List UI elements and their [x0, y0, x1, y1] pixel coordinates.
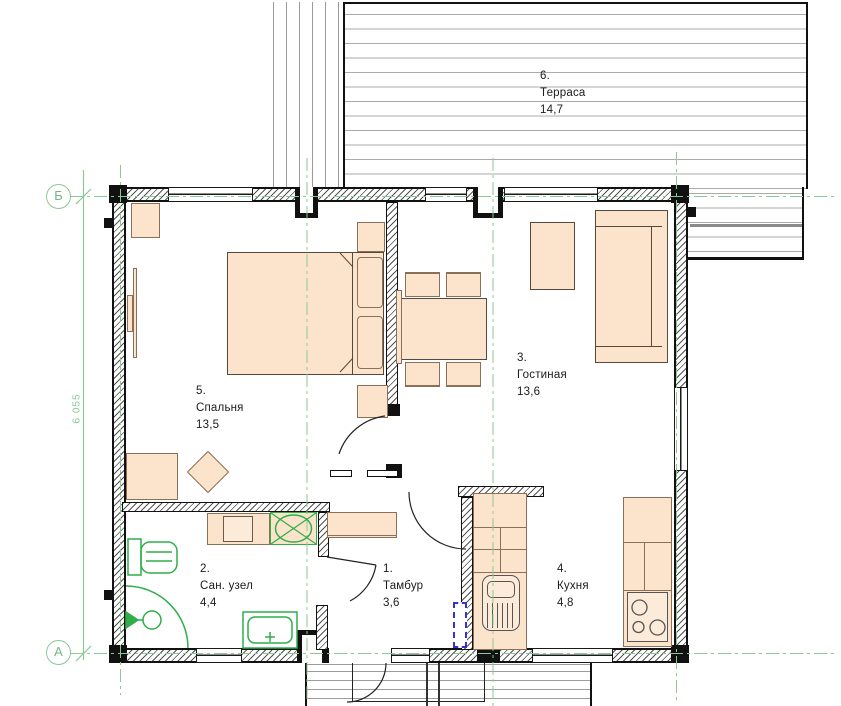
kitchen-counter-left-line2 [474, 572, 526, 573]
wall-corner-ne [671, 185, 689, 203]
room-number: 6. [540, 68, 586, 85]
floor-plan: 6. Терраса 14,7 [0, 0, 841, 706]
half-wall-right [367, 470, 398, 477]
sofa [595, 210, 668, 363]
entry-sidelight [391, 648, 430, 663]
wall-shelf [133, 268, 137, 358]
chair-2 [446, 272, 481, 297]
window-top-center [425, 187, 467, 202]
partition-bedroom-bath [122, 502, 330, 512]
dimension-value: 6 055 [72, 393, 83, 423]
chair-4 [446, 362, 481, 387]
room-name: Гостиная [517, 367, 567, 384]
window-bathroom [196, 648, 242, 663]
porch-step-line-2 [438, 663, 440, 706]
porch-landing [352, 663, 485, 702]
room-name: Терраса [540, 85, 586, 102]
wall-corner-se [671, 645, 689, 663]
room-label-tambur: 1. Тамбур 3,6 [383, 561, 423, 612]
room-area: 4,8 [557, 595, 589, 612]
wall-corner-sw [109, 645, 127, 663]
terrace-ramp-strip [273, 2, 345, 187]
axis-label: А [54, 644, 63, 659]
room-number: 4. [557, 561, 589, 578]
window-kitchen [532, 648, 613, 663]
tambur-bench-line [328, 535, 396, 536]
washing-machine [270, 512, 317, 545]
room-name: Кухня [557, 578, 589, 595]
nightstand-bottom [357, 385, 388, 418]
bed-mattress-line [352, 253, 353, 374]
room-name: Спальня [196, 400, 244, 417]
bath-counter-sink [223, 516, 253, 542]
room-name: Тамбур [383, 578, 423, 595]
wall-left [112, 187, 126, 663]
chair-3 [405, 362, 440, 387]
kitchen-counter-left-grid-h [474, 549, 526, 550]
pillow-top [357, 257, 383, 308]
nightstand-top [357, 222, 385, 252]
wall-bench [396, 290, 402, 364]
partition-bath-tambur-lower [316, 605, 328, 650]
room-number: 2. [200, 561, 253, 578]
room-name: Сан. узел [200, 578, 253, 595]
dimension-6055: 6 055 [72, 387, 83, 431]
room-area: 13,6 [517, 384, 567, 401]
kitchen-sink-drain [487, 603, 515, 628]
kitchen-sink-bowl [487, 581, 515, 598]
pillow-bottom [357, 316, 383, 369]
door-jamb-bedroom-top [386, 404, 400, 416]
pier-top-bedroom [295, 187, 318, 218]
coffee-table [530, 222, 575, 290]
terrace-deck-joint [690, 224, 802, 227]
dining-table [400, 298, 487, 360]
terrace-door [504, 187, 598, 202]
porch-step-line-1 [426, 663, 428, 706]
cabinet-bedroom [131, 203, 160, 238]
room-label-kitchen: 4. Кухня 4,8 [557, 561, 589, 612]
room-area: 4,4 [200, 595, 253, 612]
room-label-living: 3. Гостиная 13,6 [517, 350, 567, 401]
half-wall-left [330, 470, 352, 477]
room-number: 5. [196, 383, 244, 400]
wall-corner-nw [109, 185, 127, 203]
room-number: 3. [517, 350, 567, 367]
room-area: 3,6 [383, 595, 423, 612]
room-label-bathroom: 2. Сан. узел 4,4 [200, 561, 253, 612]
kitchen-counter-right-div-v [644, 542, 645, 590]
entry-door-opening [327, 648, 391, 663]
stove [627, 592, 668, 642]
room-number: 1. [383, 561, 423, 578]
kitchen-counter-right-line2 [624, 590, 671, 591]
axis-marker-B: Б [46, 184, 71, 209]
room-label-bedroom: 5. Спальня 13,5 [196, 383, 244, 434]
window-living [674, 387, 688, 471]
pier-top-living [473, 187, 503, 218]
window-bedroom [168, 187, 253, 202]
sofa-back-line [651, 226, 652, 347]
desk-bedroom [126, 453, 178, 500]
room-area: 14,7 [540, 102, 586, 119]
electric-panel [453, 602, 467, 648]
kitchen-counter-right-line1 [624, 542, 671, 543]
wall-shelf-small [127, 295, 133, 332]
axis-marker-A: А [46, 640, 71, 665]
chair-1 [405, 272, 440, 297]
room-label-terrace: 6. Терраса 14,7 [540, 68, 586, 119]
room-area: 13,5 [196, 417, 244, 434]
axis-label: Б [54, 188, 63, 203]
